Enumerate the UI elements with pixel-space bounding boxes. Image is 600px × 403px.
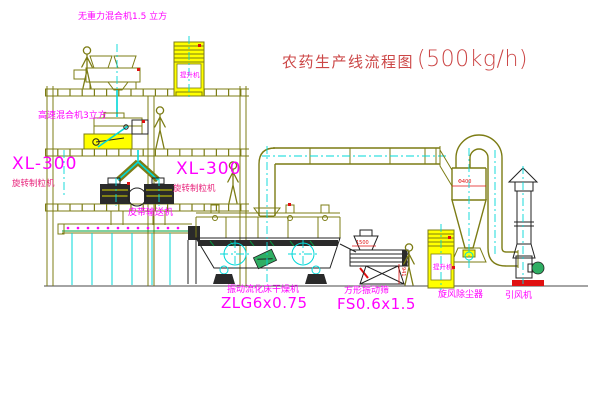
cyclone-separator bbox=[452, 135, 502, 268]
label-granulator-left-model: XL-300 bbox=[12, 156, 77, 173]
dim-screen-width: 1500 bbox=[356, 241, 369, 246]
label-cyclone: 旋风除尘器 bbox=[438, 291, 483, 300]
stack-and-fan bbox=[509, 166, 544, 286]
label-elevator-top: 提升机 bbox=[180, 72, 200, 79]
downpipe bbox=[488, 150, 518, 268]
diagram-title: 农药生产线流程图 (500kg/h) bbox=[282, 47, 528, 72]
title-capacity: (500kg/h) bbox=[417, 47, 528, 72]
label-dryer-model: ZLG6x0.75 bbox=[221, 296, 308, 311]
person-figure bbox=[155, 107, 165, 148]
fluid-bed-dryer bbox=[196, 203, 356, 284]
label-screen-model: FS0.6x1.5 bbox=[337, 297, 416, 312]
label-elevator-right: 提升机 bbox=[433, 264, 453, 271]
rotary-granulators bbox=[100, 178, 174, 206]
label-granulator-mid-model: XL-300 bbox=[176, 161, 241, 178]
bucket-elevator-top bbox=[174, 36, 204, 98]
title-text: 农药生产线流程图 bbox=[282, 51, 414, 72]
label-belt-conveyor: 皮带输送机 bbox=[128, 209, 173, 218]
belt-conveyor bbox=[58, 224, 200, 285]
label-granulator-left-name: 旋转制粒机 bbox=[12, 180, 55, 189]
cad-flowsheet-canvas: 农药生产线流程图 (500kg/h) 无重力混合机1.5 立方 高速混合机3立方… bbox=[0, 0, 600, 403]
dim-screen-height: 941 bbox=[400, 267, 405, 277]
exhaust-duct bbox=[259, 146, 452, 284]
label-granulator-mid-name: 旋转制粒机 bbox=[173, 185, 216, 194]
cyclone-diameter-mark: Φ400 bbox=[458, 180, 471, 185]
label-fan: 引风机 bbox=[505, 292, 532, 301]
feed-pipe-split bbox=[118, 162, 158, 180]
bucket-elevator-right bbox=[428, 224, 455, 290]
label-gravity-mixer: 无重力混合机1.5 立方 bbox=[78, 13, 167, 22]
label-high-speed-mixer: 高速混合机3立方 bbox=[38, 112, 107, 121]
